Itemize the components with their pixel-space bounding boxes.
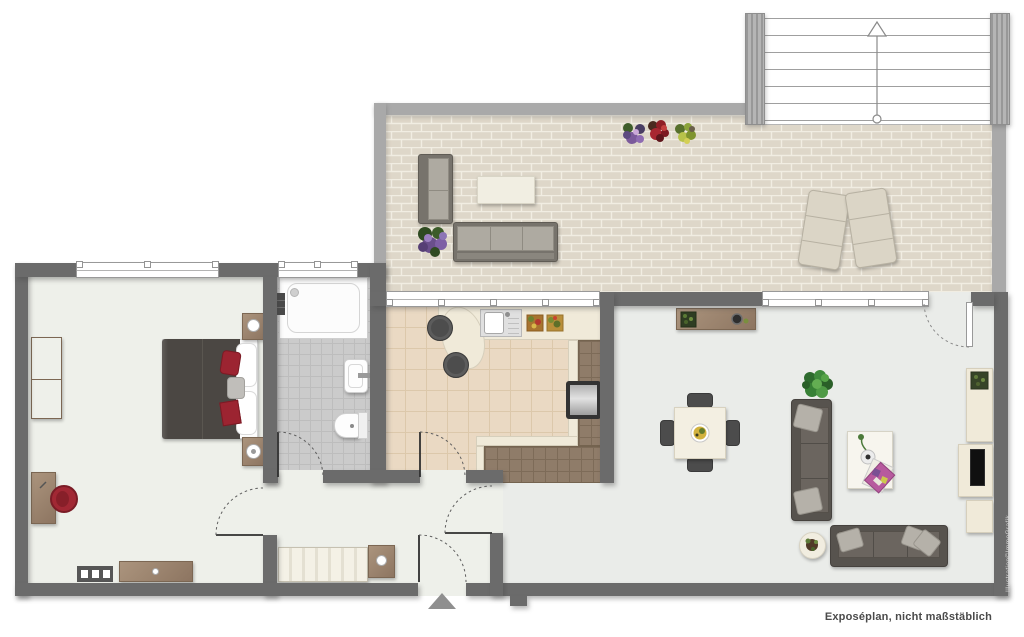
window-post bbox=[351, 261, 358, 268]
tv-cabinet-top bbox=[966, 368, 993, 442]
living-sideboard bbox=[676, 308, 756, 330]
hall-cabinet-lamp bbox=[376, 555, 387, 566]
terrace-door-leaf bbox=[966, 302, 973, 347]
window-post bbox=[386, 299, 393, 306]
bar-stool-1 bbox=[427, 315, 453, 341]
toilet-cistern bbox=[358, 412, 368, 439]
window-post bbox=[438, 299, 445, 306]
staircase bbox=[763, 18, 990, 125]
wall-hall-a bbox=[263, 470, 278, 483]
bed-cushion-red-2 bbox=[219, 400, 242, 427]
dining-chair-top bbox=[687, 393, 713, 408]
window-post bbox=[490, 299, 497, 306]
kitchen-sink-basin bbox=[484, 312, 504, 334]
toilet-bowl bbox=[334, 413, 360, 438]
kitchen-doorway-floor bbox=[420, 470, 466, 483]
wall-top-right-corner bbox=[971, 292, 994, 306]
nightstand-bottom-lamp-dot bbox=[251, 449, 256, 454]
wall-stub-living-door bbox=[490, 533, 503, 596]
window-post bbox=[922, 299, 929, 306]
bed-cushion-gray bbox=[227, 377, 245, 399]
window-post bbox=[144, 261, 151, 268]
window-post bbox=[593, 299, 600, 306]
dining-chair-bottom bbox=[687, 457, 713, 472]
passage-floor bbox=[503, 483, 614, 583]
dresser-knob bbox=[152, 568, 159, 575]
terrace-wall-left bbox=[374, 103, 386, 263]
window-post bbox=[815, 299, 822, 306]
window-living bbox=[762, 291, 929, 307]
stove-front bbox=[570, 385, 597, 415]
wall-hall-c bbox=[466, 470, 503, 483]
stair-pillar-right bbox=[990, 13, 1010, 125]
outdoor-sofa-backrest bbox=[457, 253, 554, 259]
wall-bottom-left bbox=[15, 583, 418, 596]
kitchen-sink-faucet bbox=[505, 312, 510, 317]
illustration-credit: Illustration©ImmoGrafik bbox=[1005, 515, 1012, 592]
plan-caption: Exposéplan, nicht maßstäblich bbox=[760, 611, 992, 623]
stair-pillar-left bbox=[745, 13, 765, 125]
window-post bbox=[542, 299, 549, 306]
dining-chair-right bbox=[725, 420, 740, 446]
wall-hall-b bbox=[323, 470, 420, 483]
wall-bottom-right bbox=[466, 583, 1008, 596]
window-post bbox=[212, 261, 219, 268]
outdoor-sofa-3seat-cushion bbox=[457, 226, 554, 251]
kitchen-sink-drainboard bbox=[508, 314, 519, 334]
wall-kitchen-living bbox=[600, 292, 614, 483]
window-post bbox=[868, 299, 875, 306]
dining-table bbox=[674, 407, 726, 459]
outdoor-table bbox=[477, 176, 535, 204]
coffee-table bbox=[847, 431, 893, 489]
wall-bedroom-bath bbox=[263, 277, 277, 483]
bed-cushion-red-1 bbox=[219, 350, 242, 377]
toilet-button bbox=[350, 424, 354, 428]
outdoor-sofa-2seat-cushion bbox=[428, 158, 449, 220]
radiator-cell-3 bbox=[103, 570, 110, 578]
wall-bottom-step bbox=[510, 596, 527, 606]
radiator-cell-2 bbox=[92, 570, 99, 578]
terrace-wall-top bbox=[374, 103, 745, 115]
radiator-cell-1 bbox=[81, 570, 88, 578]
desk-chair-seat bbox=[56, 491, 69, 507]
bedroom-wardrobe bbox=[31, 337, 62, 419]
bath-doorway-floor bbox=[278, 470, 323, 483]
window-post bbox=[76, 261, 83, 268]
window-post bbox=[314, 261, 321, 268]
side-table-round bbox=[799, 532, 826, 559]
nightstand-top-lamp bbox=[247, 319, 260, 332]
tv bbox=[970, 449, 985, 486]
bathroom-radiator bbox=[277, 293, 285, 315]
terrace-doorway-floor bbox=[928, 292, 971, 306]
tv-cabinet-bottom bbox=[966, 500, 993, 533]
bathtub-drain bbox=[290, 288, 299, 297]
floor-plan: Exposéplan, nicht maßstäblich Illustrati… bbox=[0, 0, 1024, 637]
bar-stool-2 bbox=[443, 352, 469, 378]
wall-outer-left bbox=[15, 263, 28, 596]
window-post bbox=[278, 261, 285, 268]
entrance-doorway-floor bbox=[418, 583, 466, 596]
dining-chair-left bbox=[660, 420, 675, 446]
hall-closet bbox=[278, 547, 368, 582]
kitchen-counter-bottom-edge bbox=[476, 436, 578, 446]
window-post bbox=[762, 299, 769, 306]
basin-faucet bbox=[358, 373, 370, 378]
